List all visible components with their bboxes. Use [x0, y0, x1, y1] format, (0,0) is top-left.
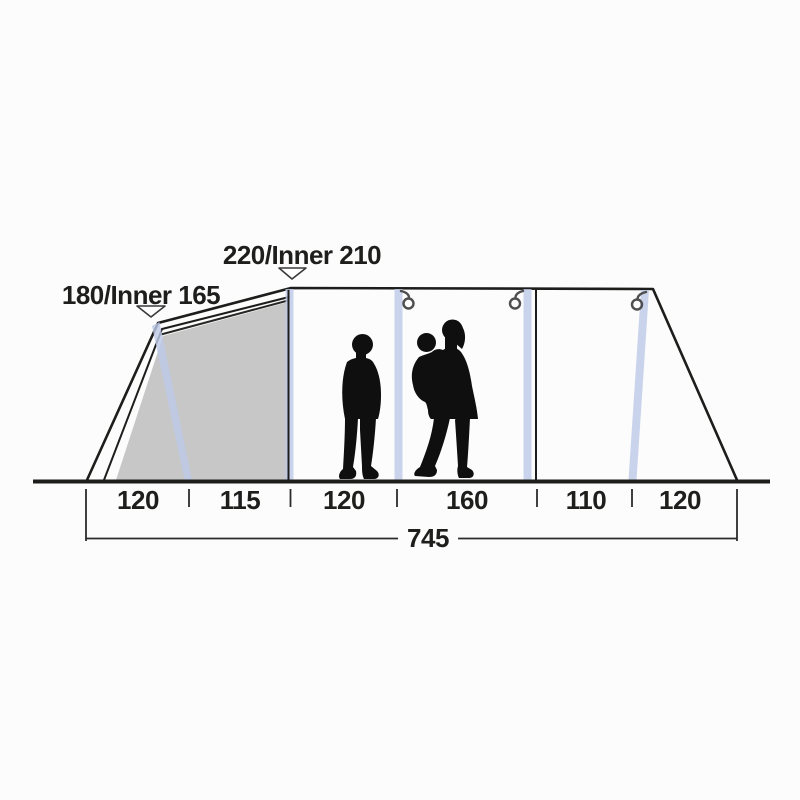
partition-lines — [289, 290, 537, 481]
segment-width-label: 120 — [659, 487, 701, 513]
height-label-main: 220/Inner 210 — [223, 242, 381, 268]
adult-silhouette — [339, 334, 381, 479]
height-label-front: 180/Inner 165 — [62, 282, 220, 308]
segment-width-label: 120 — [117, 487, 159, 513]
air-pole-mid-right — [524, 289, 532, 480]
tent-dimension-diagram: 180/Inner 165 220/Inner 210 120 115 120 … — [0, 0, 800, 800]
lantern-hook-icon — [510, 291, 523, 309]
segment-width-label: 115 — [220, 487, 260, 513]
lantern-hook-icon — [401, 291, 414, 309]
air-pole-mid-left — [395, 289, 403, 480]
total-width-label: 745 — [398, 525, 458, 551]
segment-width-label: 120 — [323, 487, 365, 513]
segment-width-label: 160 — [446, 487, 488, 513]
adult-with-child-silhouette — [412, 320, 478, 479]
inner-tent-area — [116, 301, 288, 481]
segment-width-label: 110 — [566, 487, 606, 513]
diagram-artwork — [0, 0, 800, 800]
air-pole-rear — [629, 290, 650, 480]
